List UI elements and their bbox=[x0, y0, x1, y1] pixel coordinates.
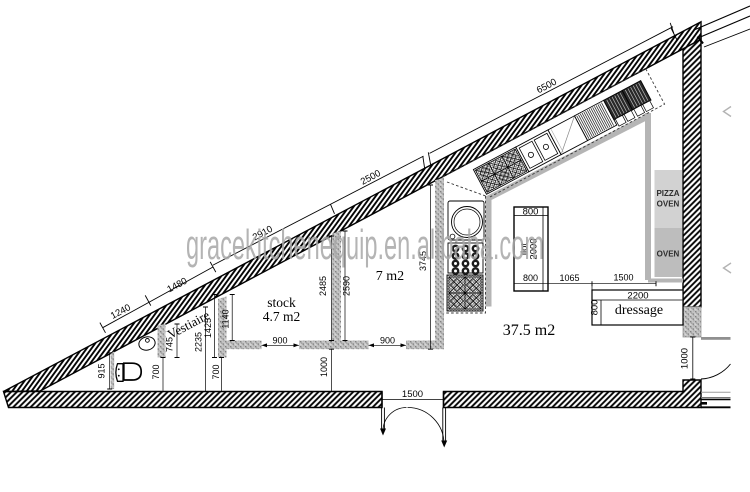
svg-text:PIZZA: PIZZA bbox=[656, 189, 679, 198]
svg-text:2485: 2485 bbox=[318, 276, 328, 296]
svg-text:915: 915 bbox=[97, 363, 107, 378]
svg-text:gracekitchenequip.en.alibaba.c: gracekitchenequip.en.alibaba.com bbox=[186, 221, 544, 268]
svg-text:900: 900 bbox=[380, 335, 395, 345]
svg-text:800: 800 bbox=[523, 207, 539, 218]
svg-text:1500: 1500 bbox=[613, 273, 633, 283]
svg-text:37.5 m2: 37.5 m2 bbox=[503, 322, 555, 339]
svg-text:1000: 1000 bbox=[319, 357, 329, 377]
svg-text:dressage: dressage bbox=[615, 303, 663, 318]
svg-text:800: 800 bbox=[590, 300, 601, 316]
svg-text:1500: 1500 bbox=[402, 389, 423, 400]
svg-text:7 m2: 7 m2 bbox=[376, 269, 404, 284]
svg-text:700: 700 bbox=[151, 364, 161, 379]
svg-text:800: 800 bbox=[523, 273, 538, 283]
svg-text:stock: stock bbox=[267, 295, 296, 310]
svg-text:4.7 m2: 4.7 m2 bbox=[263, 309, 301, 324]
svg-text:700: 700 bbox=[211, 364, 221, 379]
svg-text:OVEN: OVEN bbox=[657, 250, 680, 259]
svg-text:2590: 2590 bbox=[342, 276, 352, 296]
svg-text:OVEN: OVEN bbox=[657, 200, 680, 209]
svg-text:900: 900 bbox=[272, 335, 287, 345]
svg-text:1140: 1140 bbox=[221, 309, 231, 328]
svg-text:2200: 2200 bbox=[627, 291, 648, 302]
svg-text:1065: 1065 bbox=[559, 273, 579, 283]
svg-text:1000: 1000 bbox=[680, 348, 691, 369]
